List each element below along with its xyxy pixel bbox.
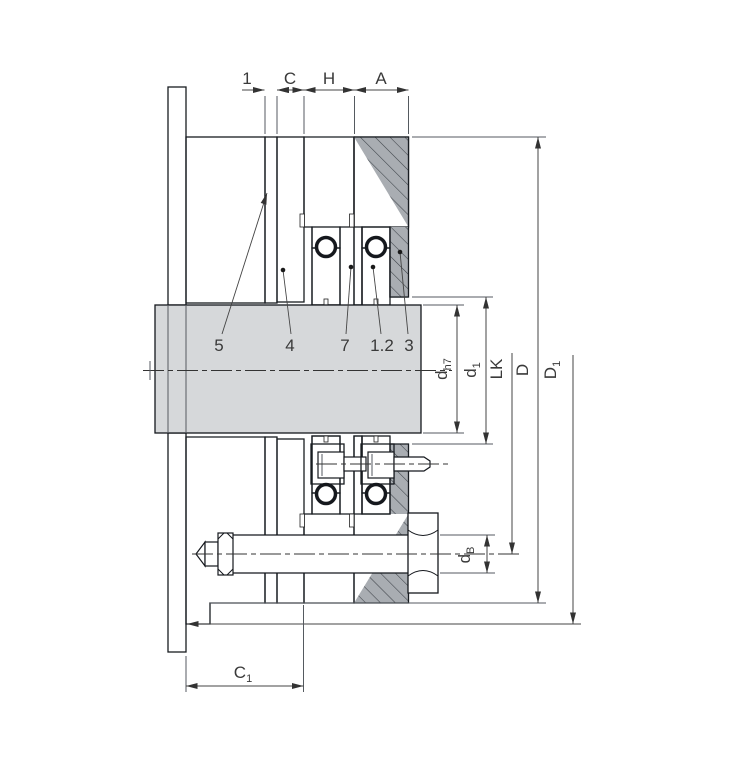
gland-slot-2 <box>350 214 355 227</box>
part-label-5: 5 <box>214 336 223 355</box>
gland-upper <box>277 137 409 305</box>
bellows-notch-3 <box>324 436 328 442</box>
leader-dot-1-2 <box>371 265 376 270</box>
leader-dot-7 <box>349 265 354 270</box>
dim-label-d: D <box>513 364 532 376</box>
dim-label-dh7: dh7 <box>432 358 454 380</box>
dim-label-d1: d1 <box>461 362 483 378</box>
bellows-notch-4 <box>374 436 378 442</box>
dim-label-lk: LK <box>487 358 506 379</box>
dim-label-db: dB <box>455 547 477 564</box>
leader-dot-4 <box>281 268 286 273</box>
technical-drawing-canvas: 1 C H A 5 4 7 1.2 3 dh7 d1 LK D D1 dB C1 <box>0 0 731 768</box>
spring-4 <box>367 485 386 504</box>
dim-label-a: A <box>375 69 387 88</box>
dim-label-c: C <box>284 69 296 88</box>
part-label-4: 4 <box>285 336 294 355</box>
dim-label-c1: C1 <box>234 663 252 685</box>
part-label-3: 3 <box>404 336 413 355</box>
dim-label-d1-outer: D1 <box>541 361 563 379</box>
spring-3 <box>317 485 336 504</box>
spring-1 <box>317 238 336 257</box>
gland-slot-4 <box>350 514 355 527</box>
bellows-notch-1 <box>324 299 328 305</box>
part-label-7: 7 <box>340 336 349 355</box>
gland-slot-1 <box>300 214 305 227</box>
shaft <box>155 305 421 433</box>
hex-nut <box>408 513 438 593</box>
gland-slot-3 <box>300 514 305 527</box>
part-label-1-2: 1.2 <box>370 336 394 355</box>
dim-label-gap: 1 <box>242 69 251 88</box>
dim-label-h: H <box>323 69 335 88</box>
spring-2 <box>367 238 386 257</box>
seal-section-drawing: 1 C H A 5 4 7 1.2 3 dh7 d1 LK D D1 dB C1 <box>0 0 731 768</box>
leader-dot-3 <box>398 250 403 255</box>
